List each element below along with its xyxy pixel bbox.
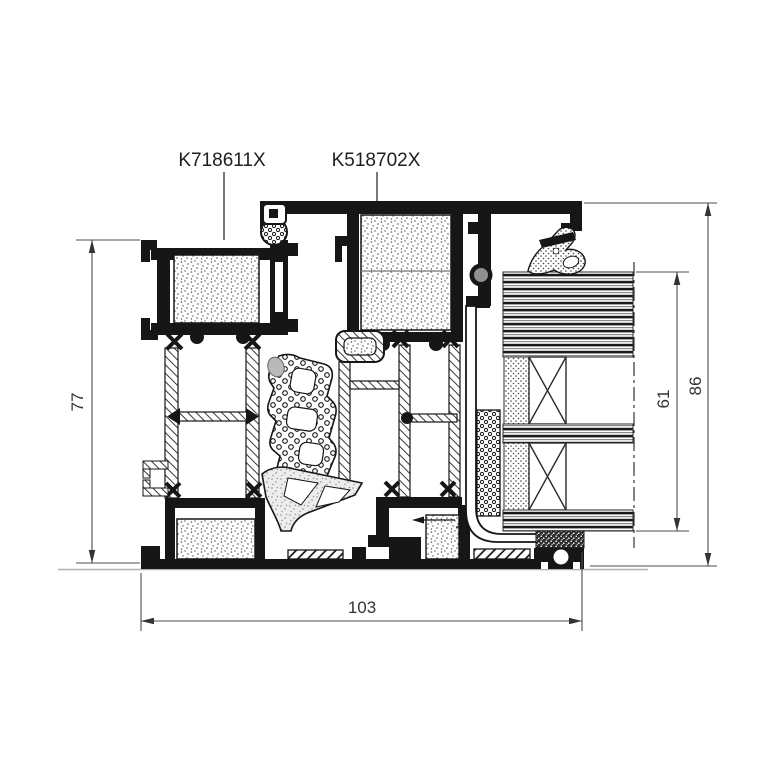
corner-gasket-boot: [528, 227, 585, 274]
technical-drawing-page: K718611X K518702X 77 86 61 103: [0, 0, 780, 780]
drainage-channel: [368, 497, 472, 559]
channel-foam-insert: [426, 515, 459, 559]
top-slide-gasket: [261, 204, 287, 245]
frame-thermal-struts: [143, 334, 261, 498]
brush-seal-assembly: [503, 262, 634, 569]
part-label-left: K718611X: [178, 150, 266, 171]
dim-text-86: 86: [686, 377, 705, 396]
frame-foam-insert: [174, 255, 259, 323]
bottom-roller: [534, 548, 584, 569]
diagram-canvas: K718611X K518702X 77 86 61 103: [0, 0, 780, 780]
foam-pad: [477, 410, 500, 516]
sash-foam-insert: [361, 215, 451, 330]
gasket-strip-left: [288, 550, 343, 559]
interlock-wall: [466, 213, 493, 308]
dim-text-77: 77: [68, 393, 87, 412]
gasket-strip-right: [474, 549, 530, 559]
fin-section-top: [503, 272, 633, 357]
knurled-block: [536, 531, 584, 548]
sill-foam-insert: [177, 519, 255, 559]
bulb-gasket: [336, 331, 384, 362]
fin-section-bottom: [503, 510, 633, 531]
fin-section-middle: [503, 424, 633, 443]
gray-gasket-roller: [474, 268, 488, 282]
dimension-frame-height: 77: [68, 240, 140, 563]
dim-text-61: 61: [654, 390, 673, 409]
part-label-right: K518702X: [332, 150, 421, 171]
dim-text-103: 103: [348, 598, 376, 617]
dimension-seal-height: 61: [636, 272, 689, 531]
